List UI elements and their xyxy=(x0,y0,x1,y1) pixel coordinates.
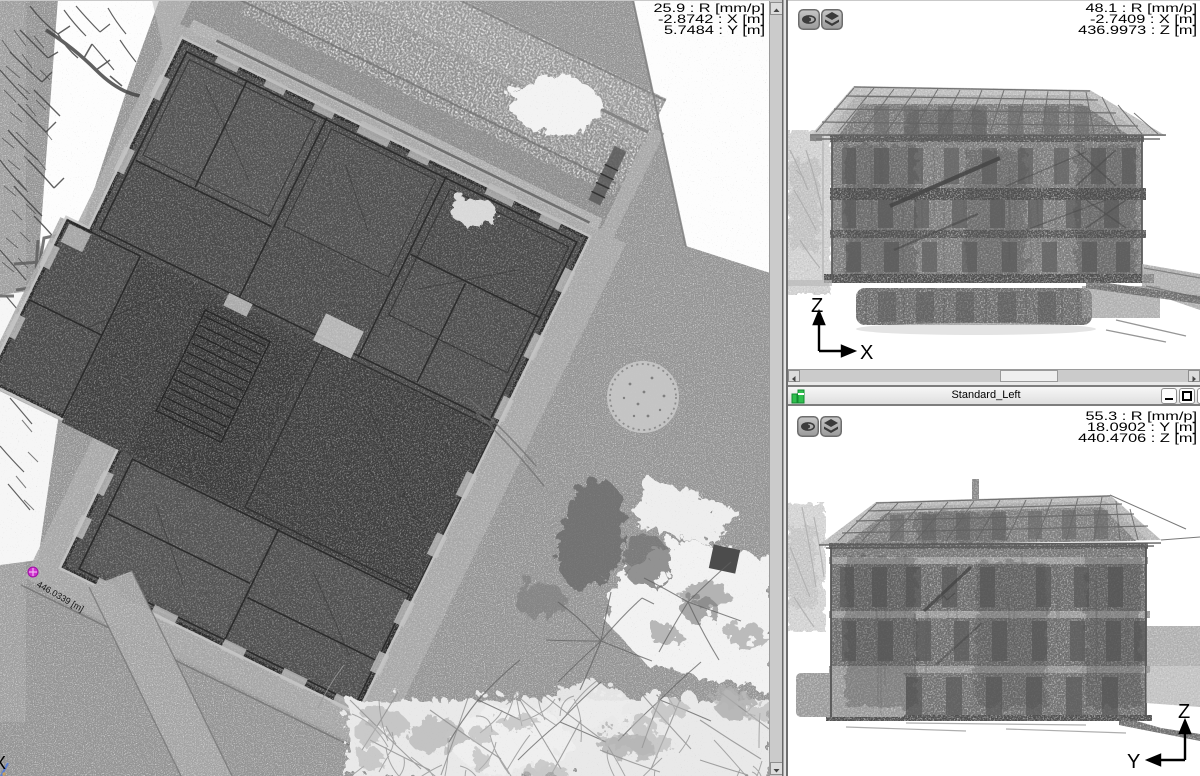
svg-text:Z: Z xyxy=(811,295,823,317)
svg-text:Z: Z xyxy=(1178,701,1190,723)
svg-text:Y: Y xyxy=(1127,751,1140,773)
svg-text:X: X xyxy=(0,753,6,773)
svg-text:X: X xyxy=(860,342,873,364)
